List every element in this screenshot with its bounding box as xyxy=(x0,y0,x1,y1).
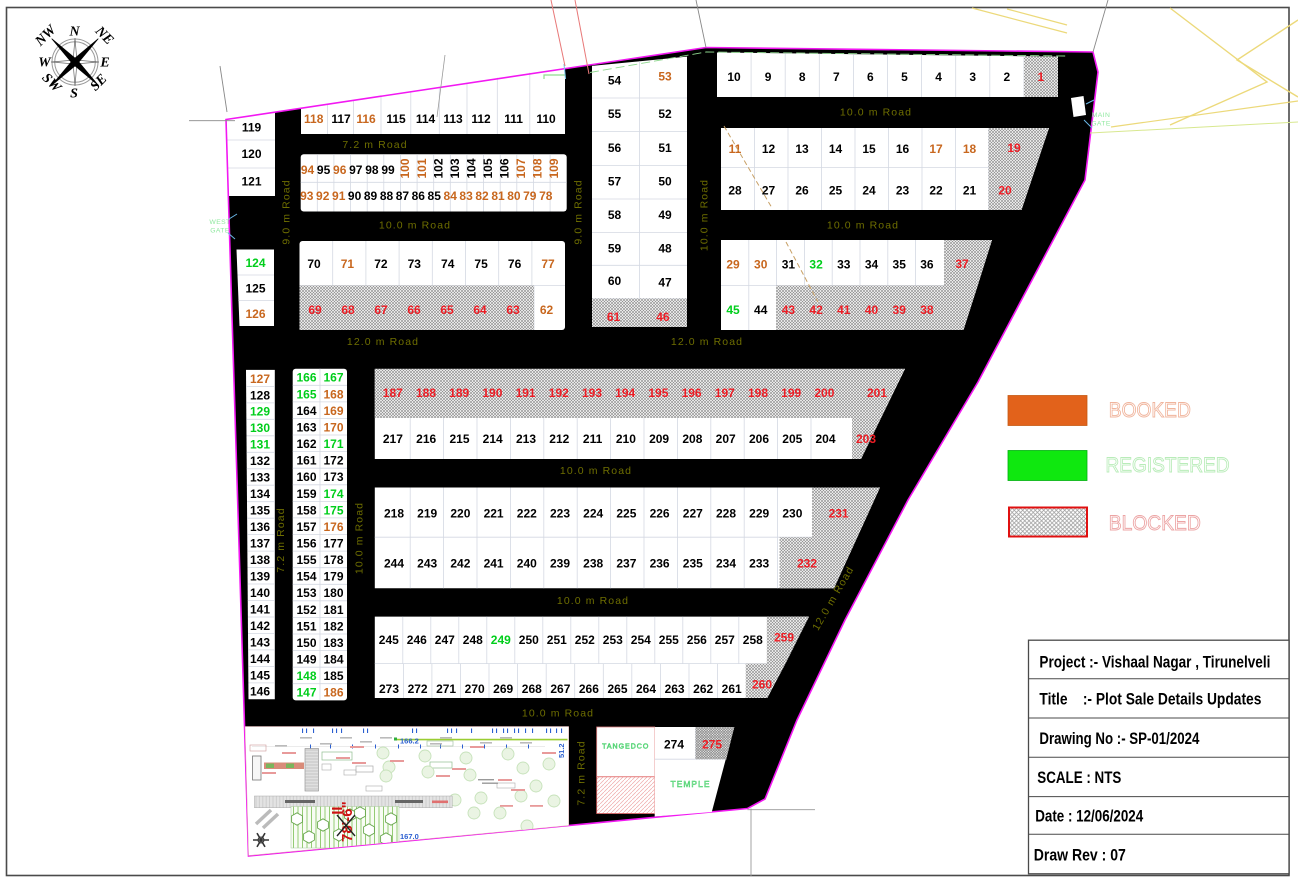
svg-text:183: 183 xyxy=(323,636,343,650)
svg-text:214: 214 xyxy=(483,432,503,446)
svg-text:139: 139 xyxy=(250,569,270,583)
svg-text:243: 243 xyxy=(417,557,437,571)
svg-text:129: 129 xyxy=(250,405,270,419)
svg-text:135: 135 xyxy=(250,504,270,518)
svg-text:184: 184 xyxy=(323,653,343,667)
svg-text:111: 111 xyxy=(504,112,523,126)
svg-text:91: 91 xyxy=(332,189,346,203)
svg-text:219: 219 xyxy=(417,507,437,521)
svg-text:242: 242 xyxy=(450,557,470,571)
svg-text:228: 228 xyxy=(716,507,736,521)
svg-text:193: 193 xyxy=(582,386,602,400)
svg-text:185: 185 xyxy=(323,669,343,683)
svg-text:18: 18 xyxy=(963,142,977,156)
svg-text:213: 213 xyxy=(516,432,536,446)
svg-text:226: 226 xyxy=(650,507,670,521)
svg-text:130: 130 xyxy=(250,421,270,435)
svg-text:2: 2 xyxy=(1003,70,1010,84)
svg-text:67: 67 xyxy=(374,303,388,317)
svg-text:179: 179 xyxy=(323,570,343,584)
svg-text:273: 273 xyxy=(379,682,399,696)
svg-text:56: 56 xyxy=(608,141,622,155)
svg-text:274: 274 xyxy=(664,738,684,752)
svg-text:260: 260 xyxy=(752,678,772,692)
svg-text:N: N xyxy=(68,25,80,40)
svg-text:262: 262 xyxy=(693,682,713,696)
svg-text:Draw Rev : 07: Draw Rev : 07 xyxy=(1034,845,1126,864)
svg-text:150: 150 xyxy=(296,636,316,650)
svg-text:188: 188 xyxy=(416,386,436,400)
svg-text:153: 153 xyxy=(296,586,316,600)
svg-text:E: E xyxy=(99,56,109,71)
svg-text:121: 121 xyxy=(241,175,261,189)
svg-text:146: 146 xyxy=(250,685,270,699)
svg-text:46: 46 xyxy=(656,310,670,324)
svg-text:11: 11 xyxy=(729,142,742,156)
svg-text:28: 28 xyxy=(728,184,742,198)
svg-text:110: 110 xyxy=(536,112,556,126)
svg-text:209: 209 xyxy=(649,432,669,446)
svg-text:238: 238 xyxy=(583,557,603,571)
svg-text:151: 151 xyxy=(296,619,316,633)
svg-text:Drawing No :- SP-01/2024: Drawing No :- SP-01/2024 xyxy=(1039,729,1199,748)
svg-text:84: 84 xyxy=(444,189,458,203)
svg-text:43: 43 xyxy=(782,303,796,317)
svg-text:101: 101 xyxy=(415,158,429,178)
svg-text:93: 93 xyxy=(300,189,314,203)
svg-text:70: 70 xyxy=(307,257,321,271)
svg-text:233: 233 xyxy=(749,557,769,571)
svg-text:41: 41 xyxy=(837,303,851,317)
svg-text:128: 128 xyxy=(250,388,270,402)
svg-text:MAIN: MAIN xyxy=(1092,112,1111,119)
svg-text:237: 237 xyxy=(616,557,636,571)
svg-text:186: 186 xyxy=(323,686,343,700)
svg-text:1: 1 xyxy=(1038,70,1045,84)
svg-text:194: 194 xyxy=(615,386,635,400)
svg-text:189: 189 xyxy=(449,386,469,400)
svg-text:104: 104 xyxy=(464,158,478,178)
svg-text:152: 152 xyxy=(296,603,316,617)
svg-text:192: 192 xyxy=(549,386,569,400)
svg-text:78: 78 xyxy=(539,189,553,203)
svg-text:246: 246 xyxy=(407,633,427,647)
svg-text:10.0 m Road: 10.0 m Road xyxy=(827,220,899,232)
svg-text:200: 200 xyxy=(814,386,834,400)
svg-text:12.0 m Road: 12.0 m Road xyxy=(671,336,743,348)
svg-text:10.0 m Road: 10.0 m Road xyxy=(840,107,912,119)
svg-text:BLOCKED: BLOCKED xyxy=(1109,512,1201,535)
svg-text:GATE: GATE xyxy=(1091,121,1111,128)
svg-text:57: 57 xyxy=(608,174,622,188)
svg-text:190: 190 xyxy=(482,386,502,400)
svg-text:72: 72 xyxy=(374,257,388,271)
svg-text:116: 116 xyxy=(356,112,376,126)
svg-text:181: 181 xyxy=(323,603,343,617)
svg-text:240: 240 xyxy=(517,557,537,571)
svg-text:55: 55 xyxy=(608,107,622,121)
svg-text:10.0 m Road: 10.0 m Road xyxy=(557,595,629,607)
svg-text:198: 198 xyxy=(748,386,768,400)
svg-text:88: 88 xyxy=(380,189,394,203)
svg-text:218: 218 xyxy=(384,507,404,521)
svg-text:64: 64 xyxy=(473,303,487,317)
svg-text:250: 250 xyxy=(519,633,539,647)
svg-text:24: 24 xyxy=(862,184,876,198)
svg-text:3: 3 xyxy=(969,70,976,84)
svg-text:98: 98 xyxy=(365,163,379,177)
svg-text:42: 42 xyxy=(809,303,823,317)
svg-text:167: 167 xyxy=(323,371,343,385)
svg-text:231: 231 xyxy=(829,507,849,521)
svg-text:175: 175 xyxy=(323,503,343,517)
svg-text:174: 174 xyxy=(323,487,343,501)
svg-text:12.0 m Road: 12.0 m Road xyxy=(347,336,419,348)
svg-text:132: 132 xyxy=(250,454,270,468)
svg-text:145: 145 xyxy=(250,668,270,682)
svg-text:39: 39 xyxy=(893,303,907,317)
svg-text:217: 217 xyxy=(383,432,403,446)
svg-text:258: 258 xyxy=(743,633,763,647)
svg-text:79: 79 xyxy=(523,189,537,203)
svg-text:77: 77 xyxy=(541,257,555,271)
svg-text:257: 257 xyxy=(715,633,735,647)
svg-text:40: 40 xyxy=(865,303,879,317)
svg-text:222: 222 xyxy=(517,507,537,521)
svg-text:168: 168 xyxy=(323,387,343,401)
svg-text:124: 124 xyxy=(245,256,265,270)
svg-text:169: 169 xyxy=(323,404,343,418)
svg-text:20: 20 xyxy=(998,184,1012,198)
svg-text:203: 203 xyxy=(856,432,876,446)
svg-text:199: 199 xyxy=(781,386,801,400)
svg-text:12: 12 xyxy=(762,142,776,156)
svg-text:248: 248 xyxy=(463,633,483,647)
svg-text:4: 4 xyxy=(935,70,942,84)
svg-text:167.0: 167.0 xyxy=(400,832,419,841)
svg-text:60: 60 xyxy=(608,274,622,288)
svg-text:148: 148 xyxy=(296,669,316,683)
svg-text:117: 117 xyxy=(331,112,351,126)
svg-text:211: 211 xyxy=(583,432,603,446)
svg-text:10.0 m Road: 10.0 m Road xyxy=(560,465,632,477)
svg-text:76: 76 xyxy=(508,257,522,271)
svg-text:236: 236 xyxy=(650,557,670,571)
svg-text:33: 33 xyxy=(837,258,851,272)
svg-text:51.2: 51.2 xyxy=(557,743,566,758)
svg-text:32: 32 xyxy=(809,258,823,272)
svg-text:89: 89 xyxy=(364,189,378,203)
svg-text:68: 68 xyxy=(341,303,355,317)
svg-text:127: 127 xyxy=(250,372,270,386)
svg-text:234: 234 xyxy=(716,557,736,571)
svg-text:224: 224 xyxy=(583,507,603,521)
svg-text:Project :- Vishaal Nagar , Tir: Project :- Vishaal Nagar , Tirunelveli xyxy=(1039,653,1270,672)
svg-text:7.2 m Road: 7.2 m Road xyxy=(342,139,407,151)
svg-text:REGISTERED: REGISTERED xyxy=(1106,454,1230,477)
svg-text:125: 125 xyxy=(245,282,265,296)
svg-text:269: 269 xyxy=(493,682,513,696)
svg-text:195: 195 xyxy=(648,386,668,400)
svg-text:10.0 m Road: 10.0 m Road xyxy=(354,502,366,574)
svg-text:80: 80 xyxy=(507,189,521,203)
svg-text:113: 113 xyxy=(443,112,463,126)
svg-text:TEMPLE: TEMPLE xyxy=(670,779,710,789)
svg-text:118: 118 xyxy=(304,112,324,126)
svg-text:30: 30 xyxy=(754,258,768,272)
svg-text:149: 149 xyxy=(296,653,316,667)
svg-text:9: 9 xyxy=(765,70,772,84)
svg-text:BOOKED: BOOKED xyxy=(1109,399,1191,422)
svg-text:GATE: GATE xyxy=(210,228,230,235)
svg-text:178: 178 xyxy=(323,553,343,567)
svg-text:142: 142 xyxy=(250,619,270,633)
svg-text:252: 252 xyxy=(575,633,595,647)
svg-text:201: 201 xyxy=(867,386,887,400)
svg-text:247: 247 xyxy=(435,633,455,647)
svg-text:25: 25 xyxy=(829,184,843,198)
svg-text:245: 245 xyxy=(379,633,399,647)
svg-text:75: 75 xyxy=(474,257,488,271)
svg-text:35: 35 xyxy=(893,258,907,272)
svg-text:212: 212 xyxy=(549,432,569,446)
svg-text:170: 170 xyxy=(323,420,343,434)
svg-text:163: 163 xyxy=(296,420,316,434)
svg-text:100: 100 xyxy=(398,158,412,178)
svg-text:166.2: 166.2 xyxy=(400,737,419,746)
svg-text:239: 239 xyxy=(550,557,570,571)
svg-text:112: 112 xyxy=(471,112,491,126)
svg-text:271: 271 xyxy=(436,682,456,696)
svg-text:103: 103 xyxy=(448,158,462,178)
svg-text:229: 229 xyxy=(749,507,769,521)
svg-text:159: 159 xyxy=(296,487,316,501)
svg-text:92: 92 xyxy=(316,189,330,203)
svg-text:45: 45 xyxy=(726,303,740,317)
svg-text:220: 220 xyxy=(450,507,470,521)
svg-text:22: 22 xyxy=(929,184,943,198)
svg-text:95: 95 xyxy=(317,163,331,177)
svg-text:255: 255 xyxy=(659,633,679,647)
svg-text:251: 251 xyxy=(547,633,567,647)
svg-text:61: 61 xyxy=(607,310,621,324)
svg-text:196: 196 xyxy=(682,386,702,400)
svg-text:7: 7 xyxy=(833,70,840,84)
svg-text:266: 266 xyxy=(579,682,599,696)
svg-text:206: 206 xyxy=(749,432,769,446)
svg-text:9.0 m Road: 9.0 m Road xyxy=(281,179,293,244)
svg-text:177: 177 xyxy=(323,537,343,551)
svg-text:7.2 m Road: 7.2 m Road xyxy=(576,740,588,805)
svg-text:S: S xyxy=(70,87,78,102)
svg-text:207: 207 xyxy=(716,432,736,446)
svg-text:227: 227 xyxy=(683,507,703,521)
svg-text:114: 114 xyxy=(416,112,436,126)
svg-text:37: 37 xyxy=(955,257,969,271)
svg-text:86: 86 xyxy=(412,189,426,203)
svg-text:27: 27 xyxy=(762,184,776,198)
svg-text:36: 36 xyxy=(920,258,934,272)
svg-text:126: 126 xyxy=(245,307,265,321)
svg-text:131: 131 xyxy=(250,438,270,452)
svg-text:106: 106 xyxy=(498,158,512,178)
svg-text:256: 256 xyxy=(687,633,707,647)
svg-text:144: 144 xyxy=(250,652,270,666)
svg-text:165: 165 xyxy=(296,387,316,401)
svg-text:102: 102 xyxy=(431,158,445,178)
svg-text:107: 107 xyxy=(514,158,528,178)
svg-text:83: 83 xyxy=(459,189,473,203)
svg-text:17: 17 xyxy=(929,142,943,156)
svg-text:232: 232 xyxy=(797,557,817,571)
svg-text:15: 15 xyxy=(862,142,876,156)
svg-text:23: 23 xyxy=(896,184,910,198)
svg-text:47: 47 xyxy=(658,276,672,290)
svg-text:99: 99 xyxy=(381,163,395,177)
svg-text:155: 155 xyxy=(296,553,316,567)
svg-text:216: 216 xyxy=(416,432,436,446)
svg-text:10.0 m Road: 10.0 m Road xyxy=(379,220,451,232)
svg-text:54: 54 xyxy=(608,74,622,88)
svg-text:7.2 m Road: 7.2 m Road xyxy=(275,507,287,572)
svg-text:164: 164 xyxy=(296,404,316,418)
svg-text:Date : 12/06/2024: Date : 12/06/2024 xyxy=(1035,807,1143,826)
svg-text:263: 263 xyxy=(665,682,685,696)
svg-text:197: 197 xyxy=(715,386,735,400)
svg-text:38: 38 xyxy=(920,303,934,317)
svg-text:272: 272 xyxy=(408,682,428,696)
svg-text:51: 51 xyxy=(658,141,672,155)
svg-text:154: 154 xyxy=(296,570,316,584)
svg-text:81: 81 xyxy=(491,189,505,203)
svg-text:13: 13 xyxy=(795,142,809,156)
svg-text:49: 49 xyxy=(658,208,672,222)
svg-text:96: 96 xyxy=(333,163,347,177)
svg-text:10.0 m Road: 10.0 m Road xyxy=(522,708,594,720)
svg-text:50: 50 xyxy=(658,175,672,189)
svg-text:230: 230 xyxy=(782,507,802,521)
svg-text:160: 160 xyxy=(296,470,316,484)
svg-text:210: 210 xyxy=(616,432,636,446)
svg-text:44: 44 xyxy=(754,303,768,317)
svg-text:90: 90 xyxy=(348,189,362,203)
svg-text:29: 29 xyxy=(726,258,740,272)
svg-text:WEST: WEST xyxy=(209,219,230,226)
svg-text:85: 85 xyxy=(428,189,442,203)
svg-text:W: W xyxy=(38,56,52,71)
svg-text:259: 259 xyxy=(774,631,794,645)
svg-text:275: 275 xyxy=(702,738,722,752)
svg-text:14: 14 xyxy=(829,142,843,156)
svg-text:191: 191 xyxy=(516,386,536,400)
svg-text:221: 221 xyxy=(484,507,504,521)
svg-text:SCALE : NTS: SCALE : NTS xyxy=(1037,768,1121,787)
svg-text:120: 120 xyxy=(241,147,261,161)
svg-text:182: 182 xyxy=(323,619,343,633)
svg-text:268: 268 xyxy=(522,682,542,696)
svg-text:108: 108 xyxy=(531,158,545,178)
svg-text:171: 171 xyxy=(323,437,343,451)
svg-text:180: 180 xyxy=(323,586,343,600)
svg-text:65: 65 xyxy=(440,303,454,317)
svg-text:6: 6 xyxy=(867,70,874,84)
svg-text:187: 187 xyxy=(383,386,403,400)
svg-text:48: 48 xyxy=(658,242,672,256)
svg-text:119: 119 xyxy=(242,121,262,135)
svg-text:115: 115 xyxy=(386,112,406,126)
svg-text:253: 253 xyxy=(603,633,623,647)
svg-text:97: 97 xyxy=(349,163,363,177)
svg-text:225: 225 xyxy=(616,507,636,521)
svg-text:157: 157 xyxy=(296,520,316,534)
svg-text:249: 249 xyxy=(491,633,511,647)
svg-text:143: 143 xyxy=(250,635,270,649)
svg-text:166: 166 xyxy=(296,371,316,385)
svg-text:141: 141 xyxy=(250,602,270,616)
svg-text:82: 82 xyxy=(475,189,489,203)
svg-text:241: 241 xyxy=(484,557,504,571)
svg-text:270: 270 xyxy=(465,682,485,696)
svg-text:162: 162 xyxy=(296,437,316,451)
svg-text:265: 265 xyxy=(607,682,627,696)
svg-text:74: 74 xyxy=(441,257,455,271)
svg-text:158: 158 xyxy=(296,503,316,517)
svg-text:215: 215 xyxy=(449,432,469,446)
svg-text:105: 105 xyxy=(481,158,495,178)
svg-text:109: 109 xyxy=(547,158,561,178)
svg-text:173: 173 xyxy=(323,470,343,484)
svg-text:267: 267 xyxy=(550,682,570,696)
svg-text:264: 264 xyxy=(636,682,656,696)
svg-text:TANGEDCO: TANGEDCO xyxy=(602,744,649,751)
svg-text:137: 137 xyxy=(250,537,270,551)
svg-text:10.0 m Road: 10.0 m Road xyxy=(699,179,711,251)
svg-text:156: 156 xyxy=(296,537,316,551)
svg-text:53: 53 xyxy=(658,69,672,83)
svg-text:161: 161 xyxy=(296,454,316,468)
svg-text:133: 133 xyxy=(250,471,270,485)
svg-text:138: 138 xyxy=(250,553,270,567)
svg-text:87: 87 xyxy=(396,189,410,203)
svg-text:69: 69 xyxy=(308,303,322,317)
svg-text:63: 63 xyxy=(506,303,520,317)
svg-text:19: 19 xyxy=(1007,141,1021,155)
svg-text:16: 16 xyxy=(896,142,910,156)
svg-text:9.0 m Road: 9.0 m Road xyxy=(573,179,585,244)
svg-text:Title :- Plot Sale Details: Title :- Plot Sale Details Updates xyxy=(1039,690,1261,709)
svg-text:62: 62 xyxy=(540,303,554,317)
svg-text:71: 71 xyxy=(341,257,355,271)
svg-text:235: 235 xyxy=(683,557,703,571)
svg-text:94: 94 xyxy=(301,163,315,177)
svg-text:261: 261 xyxy=(722,682,742,696)
svg-text:204: 204 xyxy=(815,432,835,446)
svg-text:172: 172 xyxy=(323,454,343,468)
svg-text:223: 223 xyxy=(550,507,570,521)
svg-text:58: 58 xyxy=(608,208,622,222)
svg-text:176: 176 xyxy=(323,520,343,534)
svg-text:21: 21 xyxy=(963,184,977,198)
svg-text:140: 140 xyxy=(250,586,270,600)
svg-text:208: 208 xyxy=(682,432,702,446)
svg-text:5: 5 xyxy=(901,70,908,84)
svg-text:78'-6": 78'-6" xyxy=(339,801,356,842)
svg-text:205: 205 xyxy=(782,432,802,446)
svg-text:31: 31 xyxy=(782,258,796,272)
svg-text:136: 136 xyxy=(250,520,270,534)
svg-text:8: 8 xyxy=(799,70,806,84)
svg-text:10: 10 xyxy=(727,70,741,84)
